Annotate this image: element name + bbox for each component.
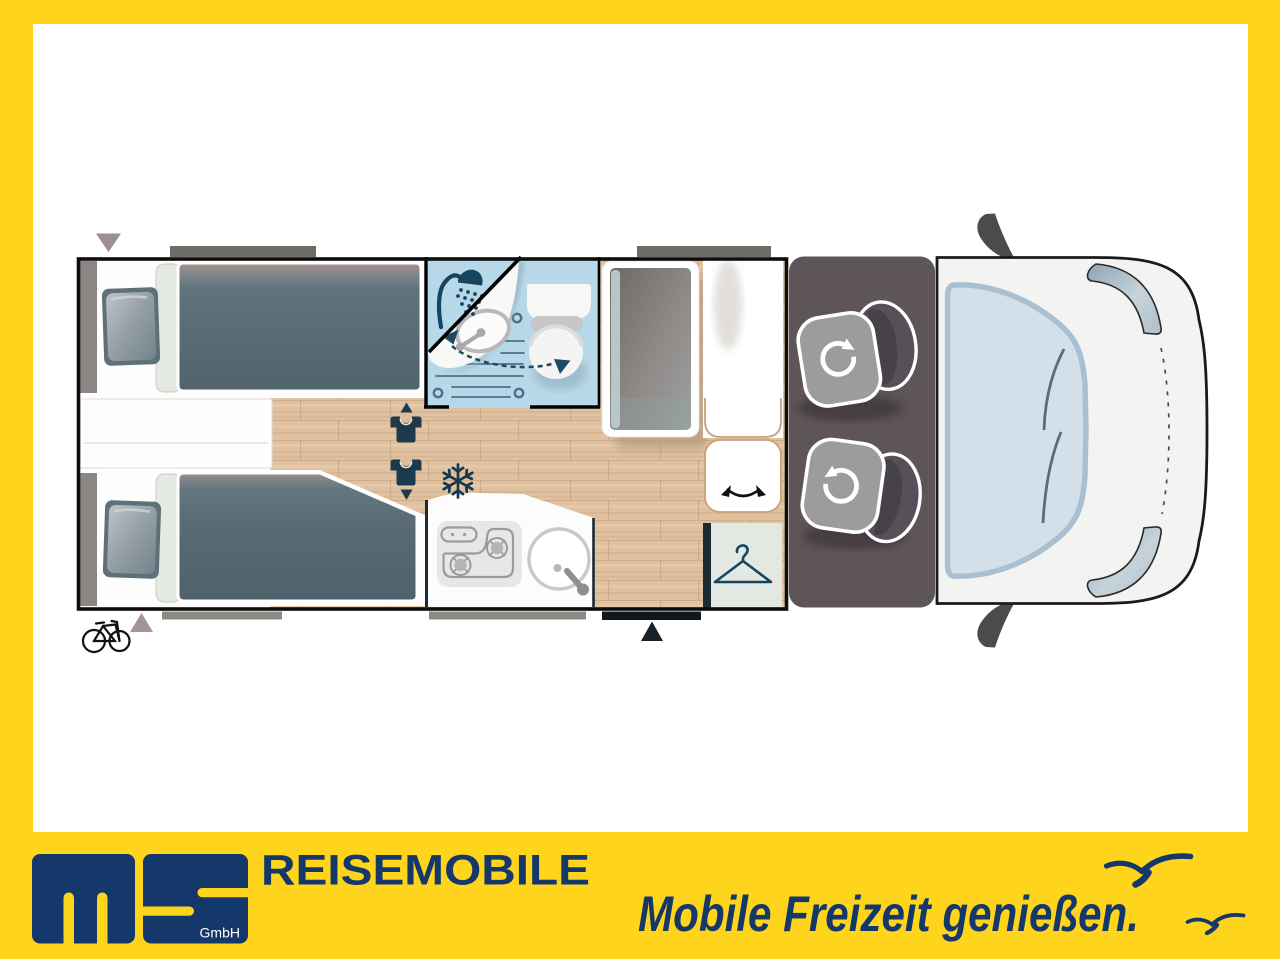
svg-text:GmbH: GmbH (200, 925, 240, 941)
svg-text:Mobile Freizeit genießen.: Mobile Freizeit genießen. (638, 886, 1139, 942)
svg-text:REISEMOBILE: REISEMOBILE (261, 847, 590, 895)
